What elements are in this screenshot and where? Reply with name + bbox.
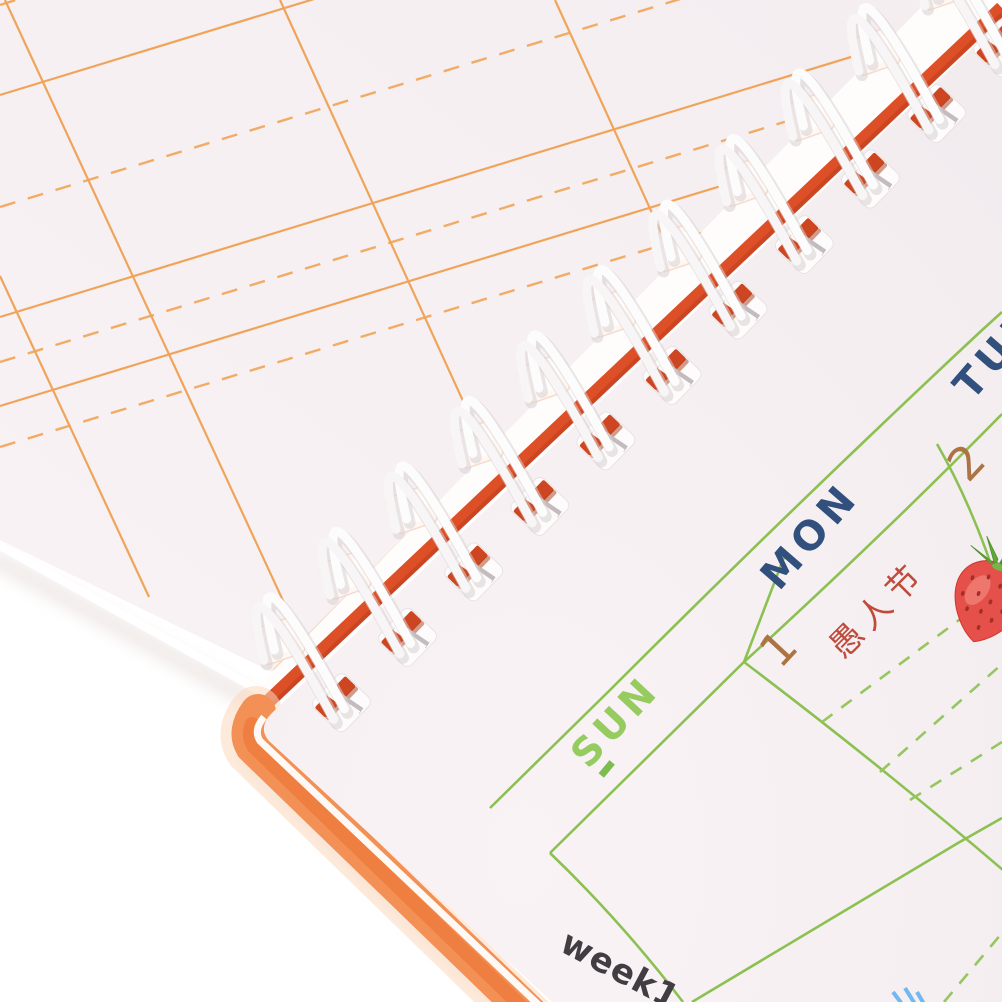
product-photo: SUN MON TUE 1 2 愚人节 week1 (0, 0, 1002, 1002)
planner-photo-art: SUN MON TUE 1 2 愚人节 week1 (0, 0, 1002, 1002)
